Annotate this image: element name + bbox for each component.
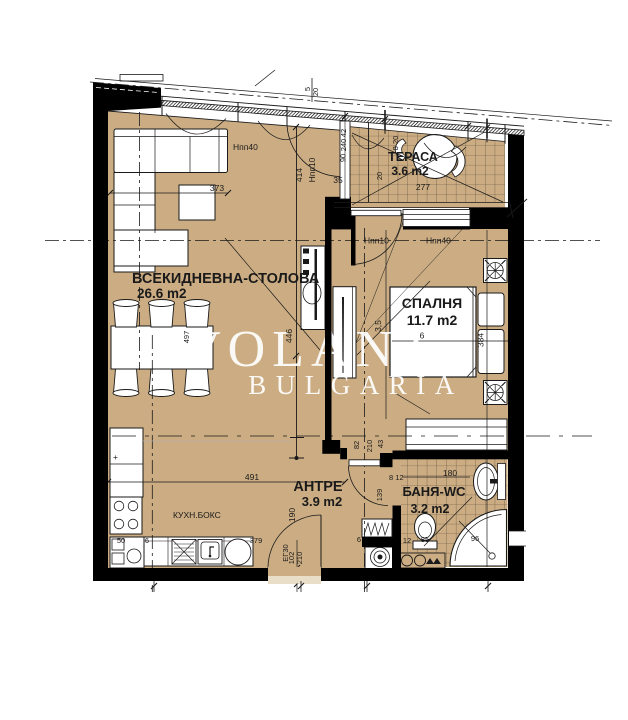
svg-text:384: 384 <box>476 333 486 347</box>
svg-text:82: 82 <box>352 441 361 449</box>
svg-text:43: 43 <box>376 440 385 448</box>
svg-text:Нпп10: Нпп10 <box>307 157 317 182</box>
svg-text:35: 35 <box>333 175 343 185</box>
svg-text:3.2 m2: 3.2 m2 <box>411 502 450 516</box>
svg-text:373: 373 <box>210 183 224 193</box>
svg-text:491: 491 <box>245 472 259 482</box>
svg-text:139: 139 <box>375 489 384 502</box>
svg-text:277: 277 <box>416 182 430 192</box>
svg-text:6: 6 <box>420 331 425 341</box>
svg-text:BULGARIA: BULGARIA <box>248 370 464 400</box>
svg-text:6: 6 <box>357 535 361 544</box>
svg-text:АНТРЕ: АНТРЕ <box>293 479 342 495</box>
svg-text:50: 50 <box>117 536 125 545</box>
svg-text:11.7 m2: 11.7 m2 <box>407 312 458 328</box>
svg-text:446: 446 <box>284 329 294 343</box>
svg-text:3.9 m2: 3.9 m2 <box>302 494 342 509</box>
svg-text:Нпп40: Нпп40 <box>426 236 451 246</box>
svg-text:БАНЯ-WC: БАНЯ-WC <box>403 484 467 499</box>
svg-text:190: 190 <box>287 508 297 522</box>
svg-text:414: 414 <box>294 168 304 182</box>
svg-text:СПАЛНЯ: СПАЛНЯ <box>402 295 462 311</box>
svg-text:210: 210 <box>365 440 374 453</box>
svg-text:90: 90 <box>339 154 348 162</box>
svg-text:ВСЕКИДНЕВНА-СТОЛОВА: ВСЕКИДНЕВНА-СТОЛОВА <box>132 271 320 287</box>
svg-text:96: 96 <box>471 534 479 543</box>
svg-text:85: 85 <box>421 535 429 544</box>
svg-text:КУХН.БОКС: КУХН.БОКС <box>173 510 221 520</box>
svg-text:240: 240 <box>339 139 348 152</box>
svg-text:42: 42 <box>339 129 348 137</box>
svg-text:Нпп40: Нпп40 <box>233 142 258 152</box>
svg-text:210: 210 <box>295 552 304 565</box>
svg-text:3,5: 3,5 <box>373 320 383 332</box>
svg-text:20: 20 <box>375 172 384 180</box>
svg-text:12: 12 <box>403 536 411 545</box>
svg-text:26.6 m2: 26.6 m2 <box>137 286 187 301</box>
svg-text:8 20: 8 20 <box>391 136 400 151</box>
svg-text:180: 180 <box>443 468 457 478</box>
svg-text:379: 379 <box>250 536 263 545</box>
svg-text:ТЕРАСА: ТЕРАСА <box>388 150 438 164</box>
svg-text:497: 497 <box>182 331 191 344</box>
svg-text:8 12: 8 12 <box>389 473 404 482</box>
svg-text:Нпп10: Нпп10 <box>364 236 389 246</box>
svg-text:6: 6 <box>145 536 149 545</box>
svg-text:3.6 m2: 3.6 m2 <box>391 164 429 178</box>
svg-text:+: + <box>113 452 118 462</box>
svg-text:20: 20 <box>311 88 320 96</box>
